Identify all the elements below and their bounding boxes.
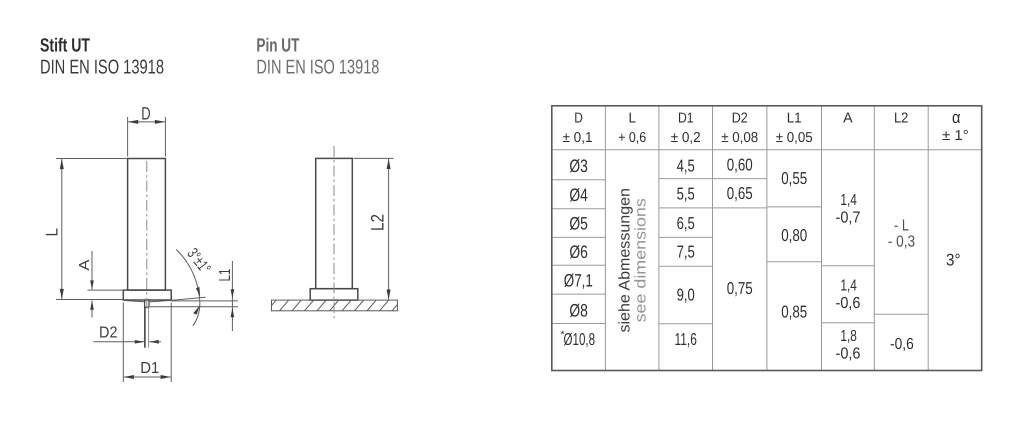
svg-text:1,4: 1,4 [840,278,857,295]
svg-text:6,5: 6,5 [677,213,695,233]
svg-text:- 0,3: - 0,3 [888,233,915,250]
svg-text:Ø5: Ø5 [569,214,588,234]
svg-text:see dimensions: see dimensions [632,198,649,322]
svg-text:*: * [561,330,565,341]
svg-text:0,55: 0,55 [781,168,807,188]
svg-text:1,8: 1,8 [840,328,857,345]
svg-text:± 0,05: ± 0,05 [776,130,813,146]
svg-text:3°: 3° [946,251,961,270]
svg-text:Pin UT: Pin UT [256,36,299,57]
svg-text:L: L [628,111,636,127]
svg-text:Ø4: Ø4 [569,185,588,205]
svg-text:± 0,1: ± 0,1 [562,130,592,146]
svg-text:A: A [843,111,853,127]
svg-text:± 0,08: ± 0,08 [721,130,758,146]
svg-text:D2: D2 [732,111,748,127]
svg-text:Ø8: Ø8 [569,300,588,320]
svg-text:Ø3: Ø3 [569,156,588,176]
svg-text:5,5: 5,5 [677,184,695,204]
svg-text:0,60: 0,60 [727,155,753,175]
svg-text:+ 0,6: + 0,6 [618,130,646,146]
svg-text:D: D [574,111,583,127]
svg-text:Stift UT: Stift UT [40,36,90,57]
svg-text:D1: D1 [140,360,159,377]
svg-text:4,5: 4,5 [677,155,695,175]
svg-text:L2: L2 [894,111,909,127]
svg-text:- L: - L [894,218,909,235]
svg-text:Ø7,1: Ø7,1 [564,271,593,291]
svg-text:11,6: 11,6 [675,329,697,349]
svg-text:A: A [77,259,93,270]
svg-text:D2: D2 [99,325,118,342]
svg-text:-0,7: -0,7 [836,210,861,227]
svg-text:0,80: 0,80 [781,225,807,245]
svg-text:0,65: 0,65 [727,183,753,203]
svg-text:± 0,2: ± 0,2 [671,130,701,146]
svg-text:D: D [141,103,150,123]
svg-text:9,0: 9,0 [677,285,695,305]
svg-text:7,5: 7,5 [677,241,695,261]
svg-text:0,85: 0,85 [781,301,807,321]
svg-text:0,75: 0,75 [727,278,753,298]
svg-text:1,4: 1,4 [840,192,857,209]
svg-text:-0,6: -0,6 [836,346,861,363]
svg-text:L2: L2 [367,214,387,231]
svg-text:L: L [43,228,62,237]
svg-text:-0,6: -0,6 [836,295,861,312]
svg-text:± 1°: ± 1° [942,128,969,144]
svg-text:-0,6: -0,6 [890,336,914,353]
svg-text:α: α [952,108,961,127]
svg-text:DIN EN ISO 13918: DIN EN ISO 13918 [256,56,379,78]
svg-text:D1: D1 [678,111,694,127]
svg-text:L1: L1 [217,268,234,281]
svg-text:siehe Abmessungen: siehe Abmessungen [616,188,633,333]
svg-text:DIN EN ISO 13918: DIN EN ISO 13918 [40,56,164,78]
svg-text:L1: L1 [787,111,802,127]
svg-text:Ø6: Ø6 [569,242,588,262]
svg-text:Ø10,8: Ø10,8 [564,329,596,349]
